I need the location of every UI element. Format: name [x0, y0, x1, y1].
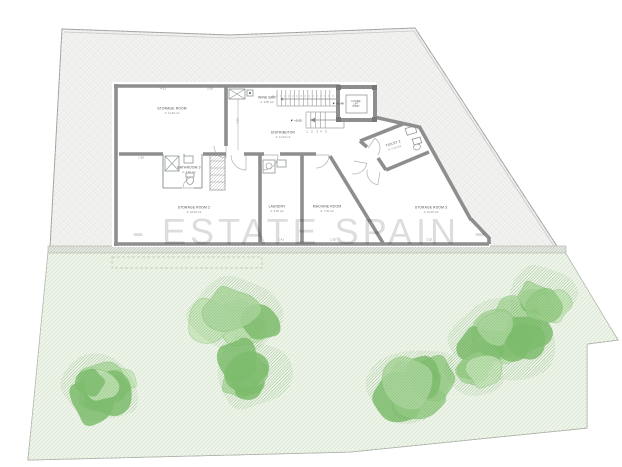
fixture: [184, 156, 193, 163]
dimension-label: 4.31: [160, 88, 166, 91]
closet-shelves: [210, 155, 225, 190]
level-marker: ▼ +1.48: [332, 103, 343, 106]
floor-plan-page: - ESTATE SPAIN - STORAGE ROOMA: 14.60 m2…: [0, 0, 622, 467]
fixture: [263, 160, 275, 173]
level-triangle-icon: ▼: [332, 103, 335, 106]
stair-number: 5: [325, 131, 327, 134]
stair-number: 2: [311, 131, 313, 134]
level-marker: ▼ +0.00: [290, 120, 301, 123]
stair-number: 1: [306, 131, 308, 134]
fixture: [277, 160, 286, 167]
lift-label: FUTURELIFTSHAFT: [351, 100, 360, 108]
dimension-label: 1.41: [278, 239, 284, 242]
dimension-label: 3.96: [237, 118, 240, 124]
stair-number: 3: [316, 131, 318, 134]
level-triangle-icon: ▼: [290, 120, 293, 123]
garden: [28, 246, 618, 460]
fixture: [186, 173, 194, 177]
floor-plan-canvas: [0, 0, 622, 467]
dimension-label: 1.90: [138, 157, 144, 160]
dimension-label: 2.05: [207, 88, 213, 91]
dimension-label: 1.35: [330, 239, 336, 242]
dimension-label: 3.25: [426, 239, 432, 242]
